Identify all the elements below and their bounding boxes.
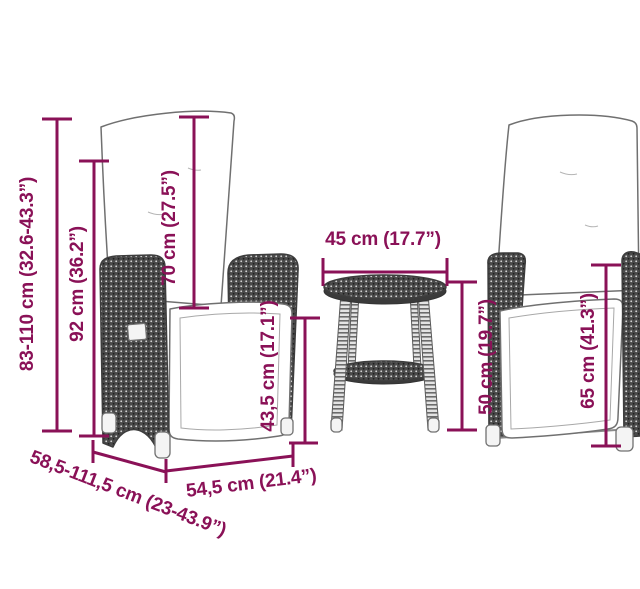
left-chair-foot — [155, 432, 170, 458]
table-top — [324, 275, 446, 299]
table-foot-cap — [428, 418, 439, 432]
side-table-illustration — [324, 275, 446, 432]
right-chair-illustration — [486, 115, 640, 451]
table-foot-cap — [331, 418, 342, 432]
left-chair-foot — [102, 413, 116, 433]
dim-label-seat-height: 43,5 cm (17.1”) — [258, 300, 279, 431]
right-chair-foot — [486, 425, 500, 446]
dim-label-table-diameter: 45 cm (17.7”) — [325, 229, 441, 250]
dim-line-table-height — [447, 282, 477, 430]
dim-label-backrest-length: 70 cm (27.5”) — [159, 170, 180, 286]
furniture-dimension-drawing: 83-110 cm (32.6-43.3”) 92 cm (36.2”) 70 … — [0, 0, 640, 589]
dim-label-seat-width: 54,5 cm (21.4”) — [185, 465, 318, 502]
dim-label-chair-height: 83-110 cm (32.6-43.3”) — [17, 177, 38, 371]
dimension-diagram: 83-110 cm (32.6-43.3”) 92 cm (36.2”) 70 … — [0, 0, 640, 589]
dim-label-backrest-top-height: 92 cm (36.2”) — [67, 226, 88, 342]
right-chair-right-armrest — [622, 252, 640, 437]
dim-label-armrest-height: 65 cm (41.3”) — [578, 293, 599, 409]
table-lower-shelf — [334, 361, 434, 381]
left-chair-foot — [281, 418, 293, 435]
dim-label-table-height: 50 cm (19.7”) — [476, 299, 497, 415]
recline-adjuster-clip — [127, 323, 146, 341]
